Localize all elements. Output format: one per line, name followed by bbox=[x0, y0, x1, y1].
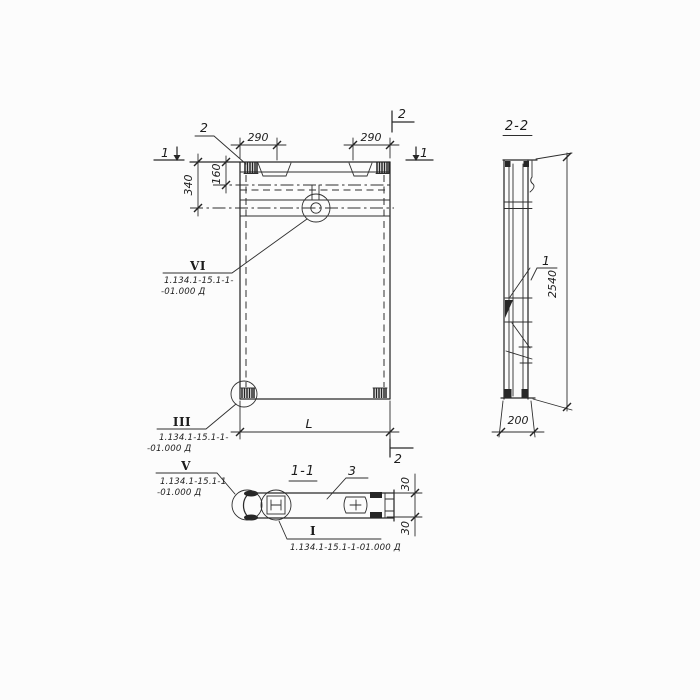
section-1-1-title: 1-1 bbox=[291, 464, 315, 479]
cut-marker-1-left-label: 1 bbox=[161, 145, 169, 160]
position-label-3: 3 bbox=[348, 463, 356, 478]
embed-plate-bottom-right bbox=[373, 388, 387, 398]
cut-marker-1-left: 1 bbox=[154, 145, 184, 161]
detail-callout-v: V 1.134.1-15.1-1 -01.000 Д bbox=[156, 459, 235, 498]
dim-340: 340 bbox=[182, 175, 195, 196]
detail-v-ref1: 1.134.1-15.1-1 bbox=[160, 477, 226, 487]
void-section-left bbox=[267, 496, 285, 514]
dim-290-left: 290 bbox=[248, 131, 269, 144]
detail-callout-iii: III 1.134.1-15.1-1- -01.000 Д bbox=[147, 404, 236, 454]
dim-200: 200 bbox=[508, 414, 529, 427]
dim-30-bottom: 30 bbox=[399, 521, 412, 535]
cut-marker-2-top-label: 2 bbox=[398, 106, 406, 121]
cut-marker-2-bottom-label: 2 bbox=[394, 451, 402, 466]
detail-callout-vi: VI 1.134.1-15.1-1- -01.000 Д bbox=[161, 219, 307, 297]
cut-marker-2-top: 2 bbox=[392, 106, 414, 132]
bar-right-end bbox=[370, 490, 394, 521]
void-section-middle bbox=[344, 497, 367, 513]
detail-vi-ref1: 1.134.1-15.1-1- bbox=[164, 276, 234, 286]
detail-iii-ref2: -01.000 Д bbox=[147, 444, 192, 454]
dim-290-right: 290 bbox=[361, 131, 382, 144]
panel-drawing-svg: 290 290 340 160 L 1 1 bbox=[0, 0, 700, 700]
recess-left bbox=[258, 163, 291, 176]
cut-marker-2-bottom: 2 bbox=[390, 439, 413, 466]
detail-iii-numeral: III bbox=[173, 415, 191, 429]
position-label-1: 1 bbox=[542, 253, 550, 268]
dim-length: L bbox=[306, 416, 313, 431]
cut-marker-1-right: 1 bbox=[406, 145, 433, 161]
section-2-2-view: 2-2 2540 20 bbox=[492, 119, 572, 437]
detail-i-ref1: 1.134.1-15.1-1-01.000 Д bbox=[290, 543, 401, 553]
detail-i-numeral: I bbox=[310, 524, 316, 538]
detail-v-ref2: -01.000 Д bbox=[157, 488, 202, 498]
detail-vi-ref2: -01.000 Д bbox=[161, 287, 206, 297]
dim-2540: 2540 bbox=[546, 270, 559, 298]
section-cut-markers: 1 1 2 2 2 bbox=[154, 106, 433, 466]
detail-v-numeral: V bbox=[180, 459, 191, 473]
cut-marker-1-right-label: 1 bbox=[420, 145, 428, 160]
dim-30-top: 30 bbox=[399, 477, 412, 491]
detail-vi-numeral: VI bbox=[189, 259, 206, 273]
section-2-2-title: 2-2 bbox=[505, 119, 529, 134]
position-leader-2: 2 bbox=[195, 120, 246, 164]
embed-plate-bottom-left bbox=[241, 388, 255, 398]
recess-right bbox=[349, 163, 372, 176]
detail-callout-i: I 1.134.1-15.1-1-01.000 Д bbox=[279, 521, 401, 553]
blueprint-page: 290 290 340 160 L 1 1 bbox=[0, 0, 700, 700]
section-1-1-view: 1-1 30 30 bbox=[156, 459, 422, 553]
dim-160: 160 bbox=[210, 164, 223, 185]
elevation-outline bbox=[240, 162, 390, 399]
position-label-2: 2 bbox=[200, 120, 208, 135]
detail-iii-ref1: 1.134.1-15.1-1- bbox=[159, 433, 229, 443]
